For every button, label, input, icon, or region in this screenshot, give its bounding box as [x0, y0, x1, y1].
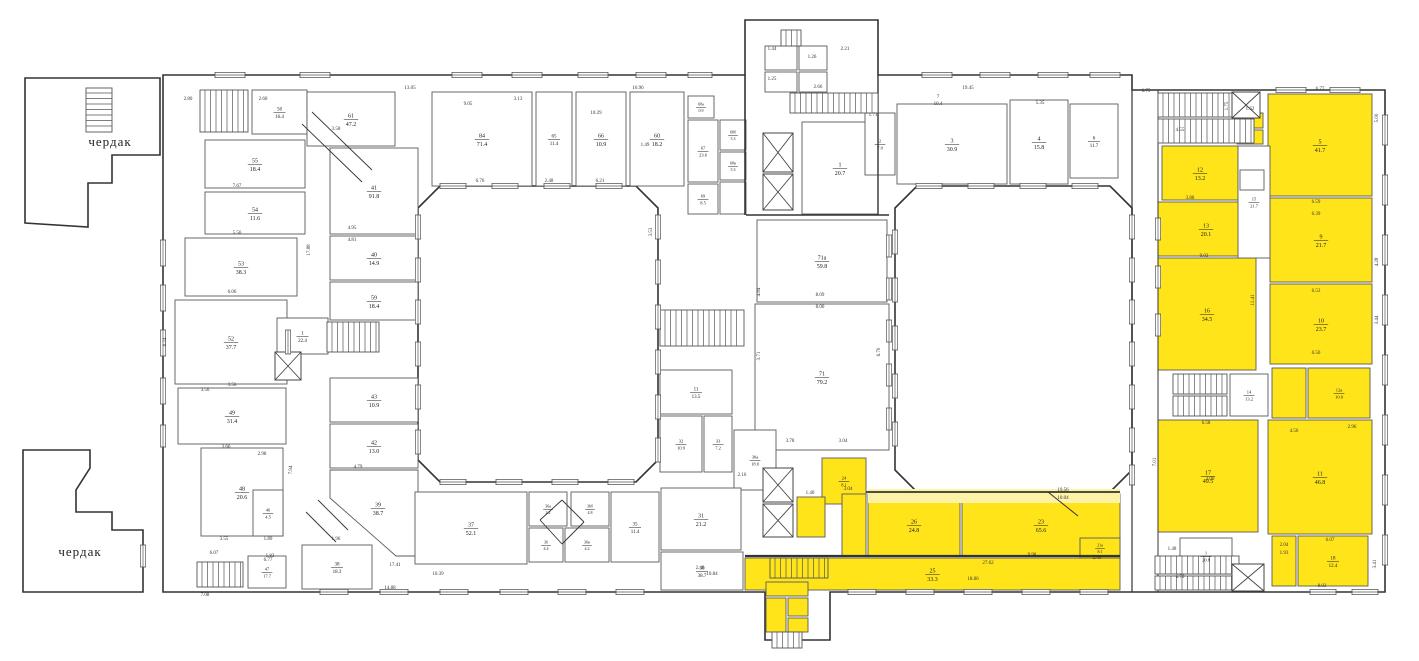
window-icon — [964, 589, 992, 595]
dimension-text: 9.03 — [1200, 254, 1209, 259]
attic-label: чердак — [58, 544, 101, 559]
svg-text:23.7: 23.7 — [1316, 327, 1327, 333]
dimension-text: 17.88 — [307, 244, 312, 256]
dimension-text: 7.01 — [1153, 457, 1158, 466]
svg-text:18.4: 18.4 — [369, 304, 380, 310]
svg-text:66: 66 — [598, 134, 604, 140]
dimension-text: 2.96 — [1348, 425, 1357, 430]
svg-text:4.8: 4.8 — [588, 510, 593, 515]
dimension-text: 4.56 — [1290, 429, 1299, 434]
svg-text:68в: 68в — [730, 161, 736, 166]
svg-text:16: 16 — [1204, 309, 1210, 315]
dimension-text: 2.60 — [259, 97, 268, 102]
svg-text:20.6: 20.6 — [237, 495, 248, 501]
staircase — [327, 322, 379, 352]
window-icon — [1090, 72, 1120, 78]
window-icon — [496, 479, 522, 485]
svg-text:4.5: 4.5 — [265, 515, 271, 520]
window-icon — [1382, 115, 1388, 145]
window-icon — [980, 72, 1010, 78]
window-icon — [160, 378, 166, 404]
svg-text:36а: 36а — [545, 504, 551, 509]
room — [788, 618, 808, 632]
window-icon — [415, 300, 421, 324]
dimension-text: 2.16 — [738, 473, 747, 478]
window-icon — [415, 258, 421, 282]
svg-text:11: 11 — [694, 388, 699, 393]
svg-text:21.7: 21.7 — [1250, 204, 1259, 209]
dimension-text: 5.35 — [1036, 101, 1045, 106]
svg-text:71а: 71а — [818, 256, 827, 262]
dimension-text: 4.55 — [1176, 128, 1185, 133]
window-icon — [608, 479, 634, 485]
window-icon — [1310, 589, 1336, 595]
svg-text:42: 42 — [371, 441, 377, 447]
window-icon — [636, 72, 666, 78]
svg-text:39: 39 — [375, 503, 381, 509]
dimension-text: 7.08 — [201, 593, 210, 598]
window-icon — [440, 589, 468, 595]
svg-text:60: 60 — [654, 134, 660, 140]
svg-text:13: 13 — [1203, 224, 1209, 230]
window-icon — [1022, 589, 1050, 595]
window-icon — [886, 408, 892, 430]
dimension-text: 1.93 — [1280, 551, 1289, 556]
elevator-shaft-icon — [763, 174, 793, 210]
svg-text:30а: 30а — [752, 455, 759, 460]
svg-text:36в: 36в — [584, 540, 590, 545]
svg-text:20.1: 20.1 — [1201, 232, 1212, 238]
room-46 — [253, 490, 283, 536]
dimension-text: 3.88 — [1186, 196, 1195, 201]
elevator-shaft-icon — [1232, 564, 1264, 591]
window-icon — [1382, 535, 1388, 565]
dimension-text: 6.06 — [228, 290, 237, 295]
svg-text:7.2: 7.2 — [715, 446, 721, 451]
svg-text:49: 49 — [229, 411, 235, 417]
dimension-text: 5.00 — [1375, 113, 1380, 122]
svg-text:14.9: 14.9 — [369, 261, 380, 267]
window-icon — [1382, 295, 1388, 325]
svg-text:23.6: 23.6 — [699, 153, 708, 158]
svg-text:18.4: 18.4 — [250, 167, 261, 173]
svg-text:33.3: 33.3 — [927, 577, 938, 583]
dimension-text: 1.62 — [1246, 107, 1255, 112]
dimension-text: 17.41 — [389, 563, 401, 568]
dimension-text: 1.71 — [869, 113, 878, 118]
svg-text:30.9: 30.9 — [947, 147, 958, 153]
svg-text:47: 47 — [265, 567, 270, 572]
dimension-text: 18.86 — [967, 577, 979, 582]
window-icon — [916, 183, 942, 189]
staircase — [86, 88, 112, 132]
svg-text:59.8: 59.8 — [817, 264, 828, 270]
room — [765, 72, 797, 92]
dimension-text: 3.53 — [649, 227, 654, 236]
svg-text:10: 10 — [1318, 319, 1324, 325]
svg-text:15: 15 — [1252, 197, 1257, 202]
dimension-text: 8.00 — [816, 305, 825, 310]
svg-text:3: 3 — [951, 139, 954, 145]
dimension-text: 2.66 — [814, 85, 823, 90]
dimension-text: 11.41 — [1251, 294, 1256, 306]
staircase — [772, 632, 802, 648]
dimension-text: 8.03 — [1318, 584, 1327, 589]
dimension-text: 3.04 — [844, 487, 853, 492]
room — [1272, 368, 1306, 418]
svg-text:36б: 36б — [587, 504, 593, 509]
svg-text:38.3: 38.3 — [236, 270, 247, 276]
svg-text:11: 11 — [1317, 472, 1323, 478]
svg-text:47.2: 47.2 — [346, 122, 357, 128]
dimension-text: 10.29 — [590, 111, 602, 116]
svg-text:8.5: 8.5 — [700, 201, 706, 206]
dimension-text: 6.39 — [1312, 212, 1321, 217]
dimension-text: 5.56 — [233, 231, 242, 236]
window-icon — [886, 320, 892, 342]
svg-text:25: 25 — [930, 569, 936, 575]
dimension-text: 3.50 — [201, 388, 210, 393]
elevator-shaft-icon — [1232, 92, 1260, 118]
dimension-text: 2.80 — [184, 97, 193, 102]
room-33 — [704, 416, 732, 472]
dimension-text: 6.58 — [1202, 421, 1211, 426]
window-icon — [1129, 300, 1135, 324]
svg-text:10.9: 10.9 — [677, 446, 686, 451]
svg-text:46: 46 — [266, 508, 271, 513]
svg-text:16.4: 16.4 — [275, 115, 284, 120]
staircase — [200, 90, 248, 132]
window-icon — [655, 260, 661, 284]
window-icon — [1155, 218, 1161, 240]
svg-text:5.3: 5.3 — [731, 136, 736, 141]
attic-label: чердак — [88, 134, 131, 149]
window-icon — [500, 589, 528, 595]
svg-text:18.2: 18.2 — [652, 142, 663, 148]
window-icon — [1020, 183, 1046, 189]
dimension-text: 3.04 — [839, 439, 848, 444]
window-icon — [1382, 235, 1388, 265]
room — [788, 598, 808, 616]
dimension-text: 2.48 — [696, 566, 705, 571]
dimension-text: 13.05 — [404, 86, 416, 91]
staircase — [770, 558, 828, 578]
window-icon — [1129, 258, 1135, 282]
elevator-shaft-icon — [763, 468, 793, 502]
svg-text:31: 31 — [698, 514, 704, 520]
staircase — [660, 310, 744, 346]
dimension-text: 3.58 — [332, 127, 341, 132]
window-icon — [440, 479, 466, 485]
dimension-text: 6.53 — [1312, 289, 1321, 294]
svg-text:10.9: 10.9 — [596, 142, 607, 148]
room-67 — [688, 120, 718, 182]
svg-text:41: 41 — [371, 186, 377, 192]
dimension-text: 4.95 — [348, 226, 357, 231]
dimension-text: 6.70 — [1176, 575, 1185, 580]
svg-text:59: 59 — [371, 296, 377, 302]
room-36а — [529, 492, 567, 526]
staircase — [781, 30, 801, 46]
room-14 — [1230, 374, 1268, 416]
staircase — [197, 562, 243, 587]
svg-text:24.8: 24.8 — [909, 528, 920, 534]
dimension-text: 6.70 — [877, 347, 882, 356]
dimension-text: 1.75 — [1225, 101, 1230, 110]
dimension-text: 2.98 — [258, 452, 267, 457]
dimension-text: 3.55 — [220, 537, 229, 542]
svg-text:18.0: 18.0 — [751, 462, 760, 467]
dimension-text: 3.44 — [1375, 315, 1380, 324]
svg-text:38: 38 — [335, 563, 341, 568]
room — [766, 582, 808, 596]
window-icon — [616, 589, 644, 595]
window-icon — [512, 72, 542, 78]
room — [766, 598, 786, 632]
staircase — [1173, 374, 1227, 394]
dimension-text: 3.71 — [757, 351, 762, 360]
svg-text:1: 1 — [839, 163, 842, 169]
svg-text:84: 84 — [479, 134, 485, 140]
svg-text:33: 33 — [716, 439, 721, 444]
window-icon — [892, 422, 898, 446]
room-32 — [660, 416, 702, 472]
window-icon — [655, 305, 661, 329]
window-icon — [886, 235, 892, 257]
room-12а — [1308, 368, 1370, 418]
svg-text:79.2: 79.2 — [817, 380, 828, 386]
room — [842, 494, 866, 556]
svg-text:48: 48 — [239, 487, 245, 493]
svg-text:71: 71 — [819, 372, 825, 378]
window-icon — [906, 589, 934, 595]
window-icon — [415, 215, 421, 239]
dimension-text: 6.07 — [210, 551, 219, 556]
window-icon — [440, 183, 466, 189]
dimension-text: 1.80 — [264, 537, 273, 542]
elevator-shaft-icon — [763, 133, 793, 172]
svg-text:68а: 68а — [698, 102, 704, 107]
window-icon — [552, 479, 578, 485]
svg-text:18: 18 — [1331, 557, 1337, 562]
dimension-text: 2.04 — [1280, 543, 1289, 548]
svg-text:17: 17 — [1205, 471, 1211, 477]
window-icon — [848, 589, 876, 595]
window-icon — [1129, 342, 1135, 366]
svg-text:52: 52 — [228, 337, 234, 343]
dimension-text: 1.83 — [266, 554, 275, 559]
svg-text:12.4: 12.4 — [1329, 564, 1338, 569]
dimension-text: 4.84 — [757, 287, 762, 296]
svg-text:4.2: 4.2 — [585, 546, 590, 551]
svg-text:46.8: 46.8 — [1315, 480, 1326, 486]
svg-text:8.1: 8.1 — [1098, 549, 1103, 554]
svg-text:7.0: 7.0 — [877, 146, 883, 151]
svg-text:65: 65 — [552, 135, 558, 140]
svg-text:15.8: 15.8 — [1034, 145, 1045, 151]
dimension-text: 27.62 — [982, 561, 994, 566]
window-icon — [1072, 183, 1098, 189]
window-icon — [578, 72, 608, 78]
svg-text:21а: 21а — [1097, 543, 1103, 548]
svg-text:1: 1 — [1205, 551, 1207, 556]
svg-text:13.2: 13.2 — [1245, 397, 1253, 402]
svg-text:61: 61 — [348, 114, 354, 120]
room-36в — [565, 528, 609, 562]
svg-text:21.2: 21.2 — [696, 522, 707, 528]
room-36 — [529, 528, 563, 562]
room-36б — [571, 492, 609, 526]
dimension-text: 3.56 — [228, 383, 237, 388]
svg-text:67: 67 — [701, 146, 706, 151]
window-icon — [886, 278, 892, 300]
svg-text:5.3: 5.3 — [731, 167, 736, 172]
window-icon — [1382, 175, 1388, 205]
elevator-shaft-icon — [763, 504, 793, 537]
window-icon — [1129, 215, 1135, 239]
staircase — [1155, 556, 1239, 574]
dimension-text: 2.21 — [841, 47, 850, 52]
dimension-text: 10.4 — [934, 102, 943, 107]
svg-text:68б: 68б — [730, 130, 736, 135]
dimension-text: 6.50 — [1312, 351, 1321, 356]
window-icon — [655, 438, 661, 462]
dimension-text: 6.77 — [1316, 87, 1325, 92]
elevator-shaft-icon — [275, 352, 301, 380]
svg-text:5: 5 — [1319, 140, 1322, 146]
dimension-text: 2.48 — [545, 179, 554, 184]
window-icon — [140, 545, 146, 567]
dimension-text: 3.66 — [222, 445, 231, 450]
svg-text:4: 4 — [1038, 137, 1041, 143]
window-icon — [1382, 355, 1388, 385]
window-icon — [892, 374, 898, 398]
dimension-text: 6.24 — [163, 337, 168, 346]
room-68а — [688, 96, 714, 118]
svg-text:21.7: 21.7 — [1316, 243, 1327, 249]
window-icon — [922, 72, 952, 78]
dimension-text: 3.78 — [786, 439, 795, 444]
svg-text:65.6: 65.6 — [1036, 528, 1047, 534]
window-icon — [968, 183, 994, 189]
staircase — [1155, 576, 1239, 590]
window-icon — [320, 589, 348, 595]
dimension-text: 1.96 — [332, 537, 341, 542]
svg-text:40: 40 — [371, 253, 377, 259]
svg-text:9: 9 — [1320, 235, 1323, 241]
window-icon — [1155, 314, 1161, 336]
staircase — [1173, 396, 1227, 416]
svg-text:53: 53 — [238, 262, 244, 268]
svg-text:10.0: 10.0 — [1335, 395, 1344, 400]
svg-text:23: 23 — [1038, 520, 1044, 526]
svg-text:13.5: 13.5 — [692, 395, 701, 400]
svg-text:69: 69 — [701, 194, 706, 199]
staircase — [1158, 119, 1254, 143]
window-icon — [1080, 589, 1108, 595]
staircase — [790, 93, 878, 113]
dimension-text: 19.45 — [962, 86, 974, 91]
room — [720, 182, 746, 214]
svg-text:10.9: 10.9 — [369, 403, 380, 409]
svg-text:38.7: 38.7 — [373, 511, 384, 517]
window-icon — [892, 326, 898, 350]
dimension-text: 3.00 — [1206, 477, 1215, 482]
dimension-text: 10.39 — [432, 572, 444, 577]
svg-text:2: 2 — [879, 139, 881, 144]
svg-text:43: 43 — [371, 395, 377, 401]
dimension-text: 1.49 — [641, 143, 650, 148]
dimension-text: 1.40 — [806, 491, 815, 496]
room — [797, 497, 825, 537]
room-68в — [720, 152, 746, 180]
svg-text:22.4: 22.4 — [298, 339, 307, 344]
dimension-text: 1.44 — [768, 47, 777, 52]
dimension-text: 9.05 — [464, 102, 473, 107]
room-68б — [720, 120, 746, 150]
svg-text:12: 12 — [1197, 168, 1203, 174]
dimension-text: 14.88 — [384, 586, 396, 591]
svg-text:12а: 12а — [1336, 388, 1343, 393]
window-icon — [415, 342, 421, 366]
window-icon — [892, 278, 898, 302]
courtyard-1 — [418, 186, 658, 482]
dimension-text: 3.41 — [1373, 559, 1378, 568]
svg-text:35: 35 — [633, 523, 639, 528]
svg-text:41.7: 41.7 — [1315, 148, 1326, 154]
window-icon — [1330, 87, 1360, 93]
svg-text:34.5: 34.5 — [1202, 317, 1213, 323]
svg-text:71.4: 71.4 — [477, 142, 488, 148]
courtyard-2 — [895, 186, 1132, 492]
svg-text:14: 14 — [1247, 390, 1252, 395]
window-icon — [160, 425, 166, 447]
svg-text:55: 55 — [252, 159, 258, 165]
svg-text:91.8: 91.8 — [369, 194, 380, 200]
dimension-text: 6.59 — [1312, 200, 1321, 205]
window-icon — [1382, 415, 1388, 445]
svg-text:54: 54 — [252, 208, 258, 214]
window-icon — [1129, 465, 1135, 485]
floor-plan: 5б16.45518.45411.65338.35237.74931.44820… — [0, 0, 1419, 661]
svg-text:20.8: 20.8 — [1202, 558, 1211, 563]
svg-text:0.9: 0.9 — [699, 108, 704, 113]
window-icon — [1038, 72, 1068, 78]
dimension-text: 8.09 — [816, 293, 825, 298]
svg-text:13.2: 13.2 — [1195, 176, 1206, 182]
window-icon — [655, 395, 661, 419]
room-15 — [1238, 146, 1270, 258]
dimension-text: 4.28 — [1375, 257, 1380, 266]
svg-text:37: 37 — [468, 523, 474, 529]
svg-text:11.7: 11.7 — [1090, 144, 1099, 149]
window-icon — [688, 72, 712, 78]
window-icon — [655, 215, 661, 239]
dimension-text: 6.07 — [1326, 538, 1335, 543]
window-icon — [1276, 87, 1306, 93]
svg-text:11.4: 11.4 — [550, 142, 559, 147]
window-icon — [1155, 266, 1161, 288]
svg-text:11.4: 11.4 — [631, 530, 640, 535]
window-icon — [160, 285, 166, 311]
dimension-text: 2.46 — [1093, 556, 1102, 561]
dimension-text: 9.98 — [1028, 553, 1037, 558]
dimension-text: 1.25 — [768, 77, 777, 82]
svg-text:13.0: 13.0 — [369, 449, 380, 455]
window-icon — [300, 72, 330, 78]
dimension-text: 19.56 — [1057, 488, 1069, 493]
dimension-text: 1.26 — [808, 55, 817, 60]
